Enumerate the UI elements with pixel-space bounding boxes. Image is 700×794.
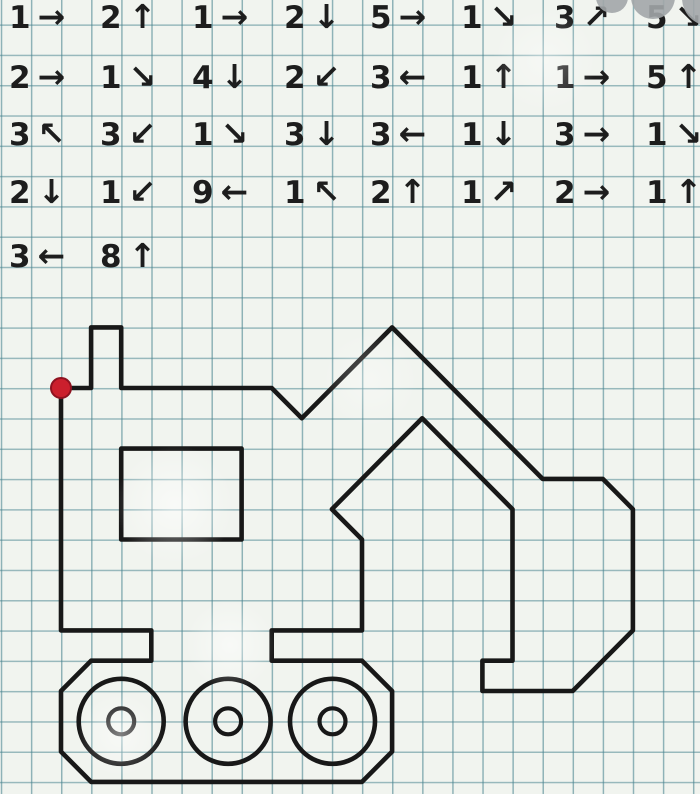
wheel-outer (290, 679, 375, 764)
wheel-outer (186, 679, 271, 764)
cab-window (121, 449, 241, 540)
worksheet-page: 1→2↑1→2↓5→1↘3↗5↘2→1↘4↓2↙3←1↑1→5↑3↖3↙1↘3↓… (0, 0, 700, 794)
excavator-outline (61, 327, 633, 782)
watermark-circle (596, 0, 628, 13)
watermark-circle (631, 0, 675, 19)
watermark-circle (682, 0, 700, 26)
wheel-outer (79, 679, 164, 764)
start-dot (51, 378, 71, 398)
wheel-hub (320, 708, 346, 734)
wheel-hub (108, 708, 134, 734)
wheel-hub (215, 708, 241, 734)
excavator-drawing (0, 0, 700, 794)
